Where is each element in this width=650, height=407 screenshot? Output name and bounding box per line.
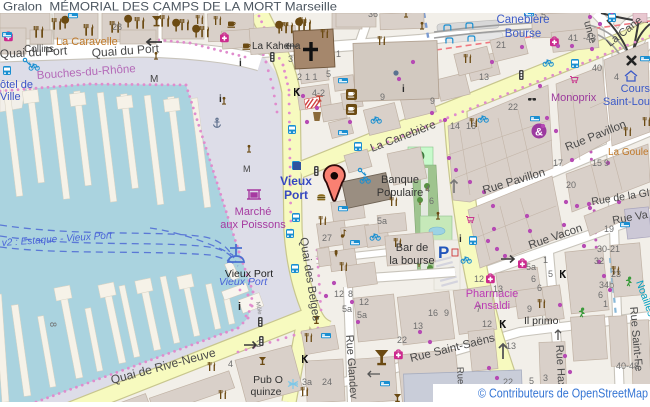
svg-text:© Contributeurs de OpenStreetM: © Contributeurs de OpenStreetMap [478, 387, 648, 401]
svg-text:5a: 5a [377, 216, 387, 226]
svg-text:7: 7 [476, 304, 481, 314]
svg-text:6: 6 [429, 196, 434, 206]
svg-text:P: P [438, 243, 449, 262]
svg-text:5a: 5a [342, 304, 352, 314]
svg-text:12: 12 [474, 274, 484, 284]
svg-text:4: 4 [425, 184, 430, 194]
svg-text:Port: Port [284, 188, 308, 202]
svg-text:Monoprix: Monoprix [551, 92, 597, 104]
svg-text:8: 8 [348, 289, 353, 299]
svg-text:12: 12 [334, 289, 344, 299]
svg-text:1: 1 [603, 299, 608, 309]
svg-text:ôtel de: ôtel de [0, 79, 33, 91]
svg-text:Il primo: Il primo [524, 315, 559, 327]
svg-text:14: 14 [450, 121, 460, 131]
svg-text:12: 12 [482, 319, 492, 329]
svg-text:i: i [238, 301, 241, 313]
svg-text:2: 2 [297, 72, 302, 82]
svg-text:Pub O: Pub O [253, 374, 283, 386]
svg-text:4: 4 [228, 359, 233, 369]
svg-text:28: 28 [112, 22, 122, 32]
svg-text:3a: 3a [302, 377, 312, 387]
svg-text:Bar de: Bar de [396, 242, 428, 254]
svg-text:-43: -43 [583, 33, 596, 43]
svg-text:Pharmacie: Pharmacie [466, 288, 519, 300]
svg-text:Vieux Port: Vieux Port [219, 276, 268, 288]
svg-text:9: 9 [430, 96, 435, 106]
svg-text:20: 20 [566, 180, 576, 190]
svg-text:13: 13 [506, 341, 516, 351]
svg-text:12: 12 [359, 297, 369, 307]
svg-text:aux Poissons: aux Poissons [220, 219, 286, 231]
svg-text:5a: 5a [357, 310, 367, 320]
svg-text:6: 6 [537, 283, 542, 293]
svg-text:4: 4 [614, 72, 619, 82]
svg-text:41: 41 [568, 33, 578, 43]
svg-text:3: 3 [543, 373, 548, 383]
svg-text:9: 9 [380, 92, 385, 102]
svg-text:17: 17 [553, 158, 563, 168]
svg-text:2: 2 [256, 339, 261, 349]
svg-text:Gralon MÉMORIAL DES CAMPS DE: Gralon MÉMORIAL DES CAMPS DE LA MORT Mar… [3, 0, 337, 14]
svg-text:Bourse: Bourse [505, 28, 541, 40]
svg-text:Rue Hax: Rue Hax [553, 345, 567, 389]
svg-text:22: 22 [397, 335, 407, 345]
svg-text:&: & [535, 127, 543, 139]
svg-text:30-21: 30-21 [597, 244, 620, 254]
svg-text:3: 3 [288, 54, 293, 64]
svg-text:40-48: 40-48 [616, 361, 639, 371]
svg-text:40: 40 [592, 63, 602, 73]
svg-text:la bourse: la bourse [389, 255, 434, 267]
svg-text:4-2: 4-2 [312, 88, 325, 98]
svg-text:5: 5 [326, 69, 331, 79]
svg-text:15: 15 [592, 158, 602, 168]
svg-text:quinze: quinze [251, 386, 282, 398]
svg-text:13: 13 [479, 72, 489, 82]
svg-text:9: 9 [527, 304, 532, 314]
svg-text:Cours: Cours [621, 83, 650, 95]
svg-text:9: 9 [604, 158, 609, 168]
svg-text:La Goule: La Goule [608, 147, 649, 158]
svg-text:Ville: Ville [0, 91, 21, 103]
svg-text:24: 24 [322, 377, 332, 387]
svg-text:M: M [243, 164, 251, 174]
svg-text:13: 13 [413, 321, 423, 331]
svg-text:Banque: Banque [381, 174, 419, 186]
svg-text:La Caravelle: La Caravelle [56, 36, 118, 48]
svg-text:Collins: Collins [24, 44, 54, 55]
svg-text:13: 13 [493, 284, 503, 294]
svg-text:16: 16 [428, 308, 438, 318]
svg-text:32: 32 [594, 256, 604, 266]
svg-text:1 1: 1 1 [305, 72, 318, 82]
svg-text:6: 6 [531, 274, 536, 284]
svg-text:Rue: Rue [454, 367, 466, 385]
svg-text:M: M [150, 74, 158, 85]
svg-text:16: 16 [466, 121, 476, 131]
svg-text:Populaire: Populaire [377, 187, 423, 199]
svg-text:27: 27 [322, 233, 332, 243]
svg-text:Vieux: Vieux [280, 174, 312, 188]
svg-text:21: 21 [496, 40, 506, 50]
svg-text:1: 1 [336, 49, 341, 59]
svg-text:5a: 5a [526, 262, 536, 272]
svg-text:23: 23 [611, 269, 621, 279]
svg-text:Saint-Lou: Saint-Lou [603, 96, 650, 108]
svg-text:19: 19 [604, 224, 614, 234]
svg-text:Marché: Marché [235, 206, 272, 218]
svg-text:22: 22 [508, 102, 518, 112]
svg-text:1: 1 [543, 255, 548, 265]
svg-text:5: 5 [548, 269, 553, 279]
svg-text:La Kahena: La Kahena [252, 41, 301, 52]
svg-text:9: 9 [444, 308, 449, 318]
svg-text:8: 8 [48, 322, 58, 327]
svg-text:34b: 34b [599, 280, 614, 290]
